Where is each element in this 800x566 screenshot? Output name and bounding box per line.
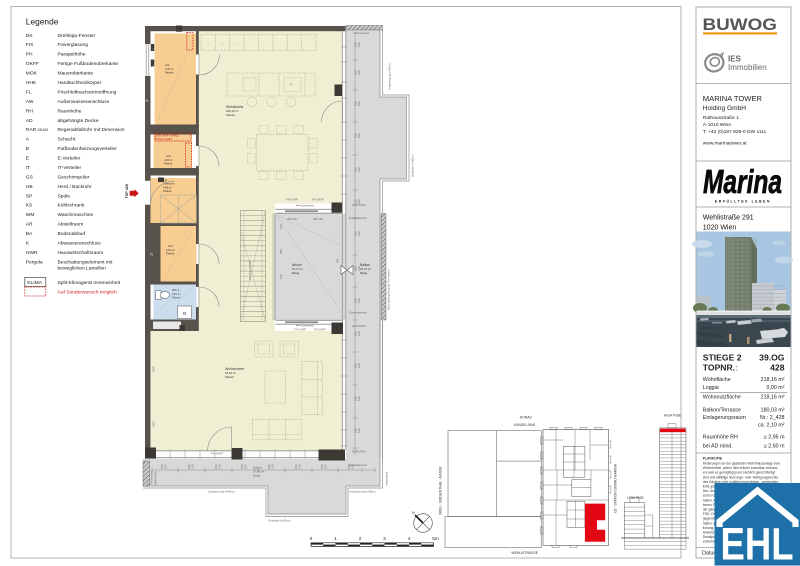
svg-text:abgehängte Decke: abgehängte Decke <box>58 118 99 124</box>
svg-text:MARINA TOWER: MARINA TOWER <box>703 94 763 103</box>
svg-text:Fußbodenheizungsverteiler: Fußbodenheizungsverteiler <box>58 146 118 152</box>
svg-text:250: 250 <box>160 464 164 469</box>
svg-text:IT: IT <box>26 165 30 171</box>
svg-text:218,16 m²: 218,16 m² <box>761 377 785 383</box>
svg-text:250 120: 250 120 <box>287 217 297 221</box>
svg-text:KANDELSKAI: KANDELSKAI <box>514 423 535 427</box>
svg-text:Beschattungselement mit: Beschattungselement mit <box>58 259 114 265</box>
svg-text:Frischluftnachströmöffnung: Frischluftnachströmöffnung <box>58 89 117 95</box>
svg-text:PLANKOPIE: PLANKOPIE <box>703 457 723 461</box>
svg-text:250: 250 <box>354 101 358 106</box>
svg-text:RH: RH <box>26 108 34 114</box>
svg-text:4,95 m²: 4,95 m² <box>165 67 174 71</box>
svg-text:HWR: HWR <box>26 250 38 256</box>
svg-text:120: 120 <box>357 70 361 75</box>
svg-text:Wohnfläche: Wohnfläche <box>703 377 731 383</box>
svg-text:MOK: MOK <box>26 71 38 77</box>
svg-text:E-Verteiler: E-Verteiler <box>58 156 81 162</box>
svg-text:250: 250 <box>354 428 358 433</box>
svg-text:4: 4 <box>408 536 411 541</box>
svg-text:120: 120 <box>324 464 328 469</box>
svg-text:beweglichen Lamellen: beweglichen Lamellen <box>58 266 107 272</box>
svg-text:Belag: Belag <box>253 473 261 477</box>
svg-text:Umgrenzung h=90cm: Umgrenzung h=90cm <box>349 490 376 494</box>
svg-text:TOPNR.:: TOPNR.: <box>703 363 738 373</box>
svg-text:www.marinatower.at: www.marinatower.at <box>703 141 747 147</box>
svg-text:KLIMA: KLIMA <box>27 280 42 286</box>
svg-text:Balkon/Terrasse: Balkon/Terrasse <box>703 407 741 413</box>
svg-text:250: 250 <box>354 298 358 303</box>
svg-text:120: 120 <box>357 396 361 401</box>
svg-text:250: 250 <box>354 70 358 75</box>
svg-text:250: 250 <box>354 231 358 236</box>
svg-text:Wehlistraße 291: Wehlistraße 291 <box>703 215 754 222</box>
svg-text:TOP 428: TOP 428 <box>125 184 129 198</box>
svg-text:BUWOG: BUWOG <box>703 16 778 34</box>
svg-text:GS: GS <box>26 174 34 180</box>
svg-text:≥ 2,60 m: ≥ 2,60 m <box>764 444 785 450</box>
svg-text:Legende: Legende <box>26 17 59 27</box>
svg-text:0: 0 <box>310 536 313 541</box>
svg-text:Holding GmbH: Holding GmbH <box>703 105 746 112</box>
svg-text:IT: IT <box>151 47 155 50</box>
svg-text:FH-OKFF: FH-OKFF <box>314 327 326 331</box>
svg-text:Änderungen an der geplanten Wo: Änderungen an der geplanten Wohnhausanla… <box>703 462 781 466</box>
svg-text:Abwasseranschluss: Abwasseranschluss <box>58 241 102 247</box>
svg-text:Duschelement: Duschelement <box>349 311 367 315</box>
svg-text:KLIMA möglich: KLIMA möglich <box>156 138 173 141</box>
svg-text:Fertige Fußbodenoberkante: Fertige Fußbodenoberkante <box>58 61 119 67</box>
svg-text:sind und allfällige Nutzungs-: sind und allfällige Nutzungs- oder Verfü… <box>703 475 779 479</box>
svg-text:120: 120 <box>244 464 248 469</box>
svg-text:IT-Verteiler: IT-Verteiler <box>58 165 82 171</box>
svg-text:Beschattung Pergola Trennwand: Beschattung Pergola Trennwand <box>387 269 391 310</box>
svg-text:HB: HB <box>26 184 33 190</box>
svg-text:Handtuchheizkörper: Handtuchheizkörper <box>58 80 102 86</box>
svg-text:Parkett: Parkett <box>165 71 173 75</box>
svg-text:Einlagerungsraum: Einlagerungsraum <box>703 415 747 421</box>
svg-text:AW: AW <box>26 99 34 105</box>
svg-text:AR: AR <box>26 222 33 228</box>
svg-text:428: 428 <box>770 363 785 373</box>
svg-text:Parkett: Parkett <box>163 189 171 193</box>
svg-text:Wohnnutzfläche: Wohnnutzfläche <box>703 394 741 400</box>
svg-text:KBS: KBS <box>152 421 156 427</box>
svg-text:PH: PH <box>26 52 33 58</box>
svg-text:120: 120 <box>164 464 168 469</box>
svg-text:Wohneinheit, sofern dem Käufer: Wohneinheit, sofern dem Käufer zumutbar,… <box>703 466 778 470</box>
svg-text:Immobilien: Immobilien <box>728 63 767 72</box>
svg-text:18 STG 17,5/28: 18 STG 17,5/28 <box>248 260 252 280</box>
svg-text:120: 120 <box>357 266 361 271</box>
svg-text:Trennwand: Trennwand <box>355 31 369 35</box>
svg-text:FH-OKFF: FH-OKFF <box>294 327 306 331</box>
svg-text:120: 120 <box>271 464 275 469</box>
svg-text:KS: KS <box>26 203 33 209</box>
svg-text:⟷ Schiebetür: ⟷ Schiebetür <box>296 203 314 207</box>
svg-text:Parkett: Parkett <box>225 375 234 379</box>
svg-text:120: 120 <box>357 428 361 433</box>
svg-text:5m: 5m <box>432 536 439 541</box>
svg-text:U2 - STATION DONAU MARINA: U2 - STATION DONAU MARINA <box>614 463 618 513</box>
svg-text:3: 3 <box>383 536 386 541</box>
svg-text:Ar1: Ar1 <box>165 63 170 67</box>
svg-text:T: +43 (0)187 828-0 DW 1111: T: +43 (0)187 828-0 DW 1111 <box>703 129 767 135</box>
svg-text:0,00 m²: 0,00 m² <box>767 385 785 391</box>
svg-text:RAR DN70: RAR DN70 <box>352 324 366 328</box>
svg-text:1: 1 <box>334 536 337 541</box>
svg-text:3,61 m²: 3,61 m² <box>172 292 181 296</box>
svg-text:⟷ Schiebetür: ⟷ Schiebetür <box>296 324 314 328</box>
svg-text:FH-OKFF: FH-OKFF <box>312 198 324 202</box>
svg-text:DONAU: DONAU <box>520 416 533 420</box>
svg-text:Parkett: Parkett <box>164 162 172 166</box>
svg-text:250: 250 <box>354 266 358 271</box>
svg-text:SP: SP <box>26 193 33 199</box>
svg-text:Fixverglasung: Fixverglasung <box>58 42 89 48</box>
svg-text:Hauswirtschaftsraum: Hauswirtschaftsraum <box>58 250 104 256</box>
svg-text:LOW RISE: LOW RISE <box>627 496 644 500</box>
svg-text:Drehkipp-Fenster: Drehkipp-Fenster <box>58 33 96 39</box>
svg-text:250: 250 <box>279 249 283 254</box>
svg-text:250: 250 <box>214 464 218 469</box>
svg-text:250: 250 <box>354 133 358 138</box>
svg-text:PH-OKFF: PH-OKFF <box>211 451 224 455</box>
svg-text:120: 120 <box>298 464 302 469</box>
svg-text:AD: AD <box>26 118 33 124</box>
svg-text:120: 120 <box>357 101 361 106</box>
svg-text:Umgrenzung h=50cm: Umgrenzung h=50cm <box>388 63 392 90</box>
svg-text:Parkett: Parkett <box>226 113 235 117</box>
svg-text:250: 250 <box>354 363 358 368</box>
svg-text:120: 120 <box>357 42 361 47</box>
svg-text:Auf Sonderwunsch möglich: Auf Sonderwunsch möglich <box>58 289 118 295</box>
svg-text:1020 Wien: 1020 Wien <box>703 225 737 232</box>
svg-text:A-1010 Wien: A-1010 Wien <box>703 122 732 128</box>
svg-text:Belag: Belag <box>292 271 300 275</box>
svg-text:RAR DN70: RAR DN70 <box>154 471 158 485</box>
svg-text:120: 120 <box>357 167 361 172</box>
svg-text:HIGH RISE: HIGH RISE <box>664 414 682 418</box>
svg-text:FL: FL <box>26 89 32 95</box>
svg-text:Bodenablauf: Bodenablauf <box>58 231 86 237</box>
svg-text:OKFF: OKFF <box>26 61 39 67</box>
svg-text:Ar2: Ar2 <box>168 244 173 248</box>
svg-text:FH-OKFF: FH-OKFF <box>286 198 298 202</box>
svg-text:STIEGE 2: STIEGE 2 <box>703 353 742 363</box>
svg-text:Spüle: Spüle <box>58 193 71 199</box>
svg-text:4,85 m²: 4,85 m² <box>163 186 172 190</box>
svg-text:B: B <box>165 179 167 183</box>
svg-text:HHK: HHK <box>26 80 37 86</box>
svg-text:Umgrenzung h=90cm: Umgrenzung h=90cm <box>208 490 235 494</box>
svg-text:Marina: Marina <box>703 163 782 200</box>
svg-text:Hauswand: Hauswand <box>385 471 389 485</box>
svg-text:Ar2: Ar2 <box>166 154 171 158</box>
svg-text:120: 120 <box>191 464 195 469</box>
svg-text:250 120: 250 120 <box>313 217 323 221</box>
svg-text:120: 120 <box>357 298 361 303</box>
svg-text:120: 120 <box>357 231 361 236</box>
svg-text:AW: AW <box>337 258 340 263</box>
svg-text:Nr.: 2_428: Nr.: 2_428 <box>760 415 784 421</box>
svg-text:ers weil es geringfügig und sa: ers weil es geringfügig und sachlich ger… <box>703 471 775 475</box>
svg-text:2,91 m²: 2,91 m² <box>166 248 175 252</box>
svg-text:Raumhöhe: Raumhöhe <box>58 108 82 114</box>
svg-text:250: 250 <box>320 464 324 469</box>
svg-text:Außenwasseranschluss: Außenwasseranschluss <box>58 99 110 105</box>
svg-text:WIEN - WIESENTHAL - GASSE: WIEN - WIESENTHAL - GASSE <box>438 466 442 515</box>
svg-text:Raumhöhe RH: Raumhöhe RH <box>703 435 738 441</box>
svg-text:BA: BA <box>26 231 33 237</box>
svg-text:DK: DK <box>26 33 34 39</box>
svg-text:Parapethöhe: Parapethöhe <box>58 52 86 58</box>
svg-text:Parkett: Parkett <box>166 252 174 256</box>
svg-text:Herd / Backrohr: Herd / Backrohr <box>58 184 93 190</box>
svg-text:Kühlschrank: Kühlschrank <box>58 203 85 209</box>
svg-text:Geländer h=90cm: Geländer h=90cm <box>411 154 415 177</box>
svg-text:250: 250 <box>267 464 271 469</box>
svg-text:Fliesen: Fliesen <box>172 296 181 300</box>
svg-text:250: 250 <box>354 331 358 336</box>
svg-text:120: 120 <box>357 363 361 368</box>
svg-text:Schacht: Schacht <box>58 137 76 143</box>
svg-text:Pergola: Pergola <box>26 259 43 265</box>
svg-text:Maueroberkante: Maueroberkante <box>58 71 94 77</box>
svg-text:Duschelement: Duschelement <box>349 463 367 467</box>
svg-text:Loggia: Loggia <box>703 385 719 391</box>
svg-text:EHL: EHL <box>721 519 794 566</box>
svg-text:RAR DN70: RAR DN70 <box>352 450 366 454</box>
svg-text:250: 250 <box>187 464 191 469</box>
svg-text:Abstellraum: Abstellraum <box>58 222 84 228</box>
svg-text:120: 120 <box>218 464 222 469</box>
svg-text:120: 120 <box>357 133 361 138</box>
svg-text:WM: WM <box>26 212 35 218</box>
svg-text:250: 250 <box>294 464 298 469</box>
svg-text:A: A <box>146 98 149 103</box>
svg-text:2: 2 <box>359 536 362 541</box>
svg-text:Geländer h=50cm: Geländer h=50cm <box>268 519 291 523</box>
svg-text:180,03 m²: 180,03 m² <box>761 407 785 413</box>
svg-text:250: 250 <box>354 396 358 401</box>
svg-text:Waschmaschine: Waschmaschine <box>58 212 94 218</box>
svg-text:bei AD mind.: bei AD mind. <box>703 444 733 450</box>
svg-text:Duschelement: Duschelement <box>349 216 367 220</box>
svg-text:250: 250 <box>354 167 358 172</box>
svg-text:250: 250 <box>240 464 244 469</box>
svg-text:Rathausstraße 1: Rathausstraße 1 <box>703 115 739 121</box>
svg-text:E: E <box>151 64 155 66</box>
svg-text:ERFÜLLTES LEBEN: ERFÜLLTES LEBEN <box>715 199 771 204</box>
svg-text:RAR DN70: RAR DN70 <box>352 203 366 207</box>
svg-text:Regenabfallrohr mit Dimension: Regenabfallrohr mit Dimension <box>58 127 125 133</box>
svg-text:ca. 2,10 m²: ca. 2,10 m² <box>758 422 785 428</box>
svg-text:2,96 m²: 2,96 m² <box>164 158 173 162</box>
svg-text:120: 120 <box>279 274 283 279</box>
svg-text:218,16 m²: 218,16 m² <box>761 394 785 400</box>
svg-text:250: 250 <box>354 42 358 47</box>
svg-text:Geschirrspüler: Geschirrspüler <box>58 174 90 180</box>
svg-text:120: 120 <box>357 331 361 336</box>
svg-text:B: B <box>26 146 29 152</box>
svg-text:Split-Klimagerät Inneneinheit: Split-Klimagerät Inneneinheit <box>58 280 121 286</box>
svg-text:120: 120 <box>279 224 283 229</box>
svg-text:WEHLISTRASSE: WEHLISTRASSE <box>511 551 538 555</box>
svg-text:FIX: FIX <box>26 42 34 48</box>
svg-text:KBS: KBS <box>152 366 156 372</box>
svg-text:39.OG: 39.OG <box>759 353 785 363</box>
svg-text:≥ 2,95 m: ≥ 2,95 m <box>764 435 785 441</box>
